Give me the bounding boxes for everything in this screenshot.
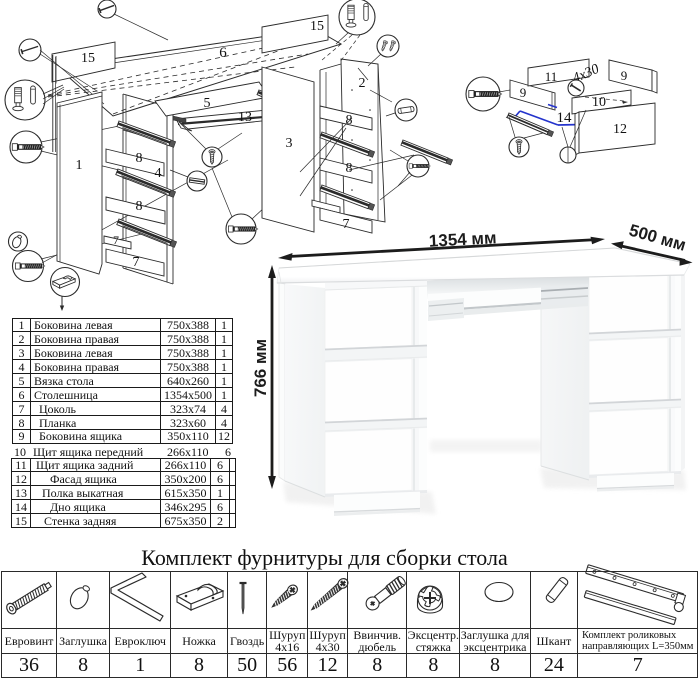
svg-text:8: 8 <box>346 113 353 128</box>
svg-text:12: 12 <box>613 122 627 137</box>
svg-text:1354 мм: 1354 мм <box>428 228 497 251</box>
svg-text:7: 7 <box>113 233 119 247</box>
svg-text:8: 8 <box>136 199 143 214</box>
svg-text:2: 2 <box>359 76 366 91</box>
svg-text:11: 11 <box>545 69 558 84</box>
svg-text:15: 15 <box>310 19 324 34</box>
svg-text:9: 9 <box>520 85 527 100</box>
svg-text:13: 13 <box>238 110 252 125</box>
svg-text:4: 4 <box>155 166 162 181</box>
svg-text:5: 5 <box>204 96 211 111</box>
svg-text:15: 15 <box>81 51 95 66</box>
svg-text:3: 3 <box>286 136 293 151</box>
svg-text:10: 10 <box>592 95 606 110</box>
svg-text:766 мм: 766 мм <box>251 339 270 397</box>
svg-text:1: 1 <box>76 158 83 173</box>
svg-text:14: 14 <box>557 110 573 126</box>
svg-text:7: 7 <box>133 255 140 270</box>
svg-text:8: 8 <box>136 151 143 166</box>
svg-text:7: 7 <box>343 217 350 232</box>
svg-text:9: 9 <box>621 68 628 83</box>
svg-text:8: 8 <box>346 161 353 176</box>
svg-text:6: 6 <box>219 45 227 61</box>
